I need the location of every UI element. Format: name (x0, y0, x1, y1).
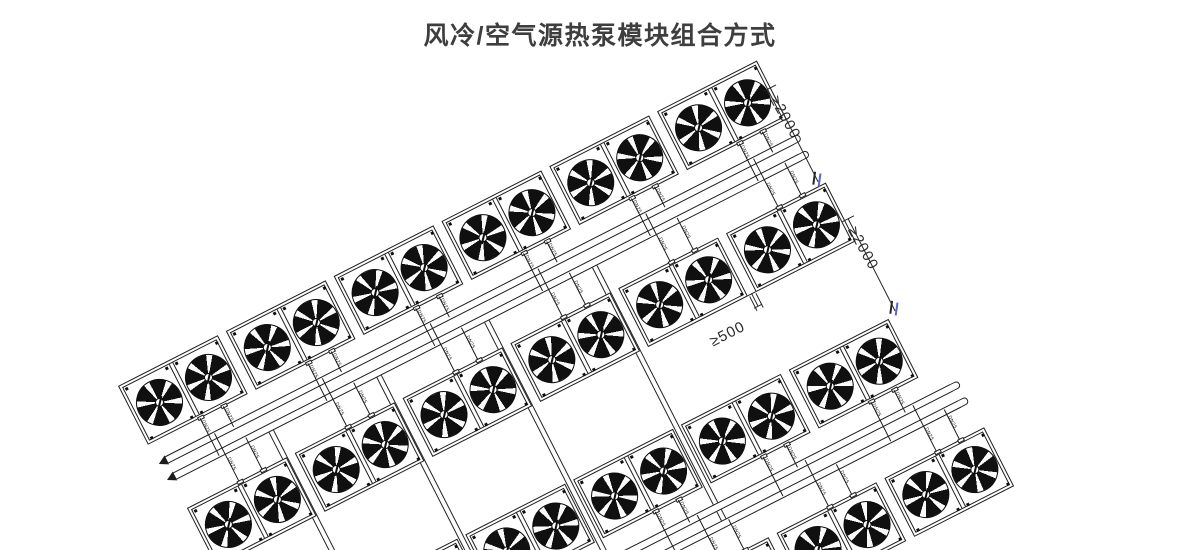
pipe-connector-label: DN25 (739, 145, 750, 160)
bolt-mark (309, 512, 313, 516)
bolt-mark (434, 448, 438, 452)
pipe-connector-label: DN25 (786, 446, 797, 461)
pipe-connector-label: DN25 (947, 415, 958, 430)
pipe-connector-label: DN25 (442, 347, 453, 362)
bolt-mark (808, 258, 812, 262)
heat-pump-module (726, 183, 856, 293)
bolt-mark (268, 532, 272, 536)
pipe-connector-label: DN25 (679, 501, 690, 516)
pipe-connector-label: DN25 (655, 188, 666, 203)
heat-pump-module (295, 402, 425, 512)
bolt-mark (798, 263, 802, 267)
bolt-mark (956, 508, 960, 512)
bolt-mark (700, 313, 704, 317)
pipe-connector-label: DN25 (547, 243, 558, 258)
dimension-label: ≥500 (707, 318, 748, 350)
bolt-mark (966, 503, 970, 507)
pipe-connector-label: DN25 (331, 353, 342, 368)
pipe-connector-label: DN25 (439, 298, 450, 313)
bolt-mark (240, 390, 244, 394)
dimension-label: ≥2000 (844, 224, 881, 273)
pipe-connector-label: DN25 (334, 402, 345, 417)
heat-pump-module (187, 457, 317, 550)
pipe-connector-label: DN25 (816, 482, 827, 497)
bolt-mark (898, 537, 902, 541)
heat-pump-module (777, 482, 907, 550)
bolt-mark (758, 283, 762, 287)
bolt-mark (347, 335, 351, 339)
pipe-connector-label: DN25 (765, 182, 776, 197)
bolt-mark (753, 454, 757, 458)
pipe-connector-label: DN25 (223, 408, 234, 423)
heat-pump-module (884, 427, 1014, 537)
bolt-mark (542, 393, 546, 397)
bolt-mark (513, 251, 517, 255)
heat-pump-module (510, 292, 640, 402)
pipe-connector-label: DN25 (657, 237, 668, 252)
pipe-connector-label: DN25 (416, 309, 427, 324)
pipe-connector-label: DN25 (924, 427, 935, 442)
bolt-mark (621, 196, 625, 200)
bolt-mark (740, 292, 744, 296)
bolt-mark (416, 457, 420, 461)
bolt-mark (713, 474, 717, 478)
bolt-mark (473, 271, 477, 275)
pipe-connector-label: DN25 (788, 170, 799, 185)
bolt-mark (582, 373, 586, 377)
bolt-mark (298, 360, 302, 364)
diagram-canvas: 风冷/空气源热泵模块组合方式 DN25DN25DN25DN25DN25DN25D… (0, 0, 1200, 550)
bolt-mark (484, 423, 488, 427)
bolt-mark (803, 429, 807, 433)
pipe-connector-label: DN25 (763, 458, 774, 473)
bolt-mark (258, 381, 262, 385)
pipe-connector-label: DN25 (894, 391, 905, 406)
bolt-mark (689, 161, 693, 165)
bolt-mark (645, 509, 649, 513)
bolt-mark (671, 170, 675, 174)
pipe-connector-label: DN25 (308, 364, 319, 379)
bolt-mark (474, 428, 478, 432)
heat-pump-module (465, 484, 595, 550)
pipe-connector-label: DN25 (731, 525, 742, 540)
bolt-mark (820, 420, 824, 424)
diagram-title: 风冷/空气源热泵模块组合方式 (0, 16, 1200, 52)
bolt-mark (695, 484, 699, 488)
pipe-connector-label: DN25 (655, 513, 666, 528)
bolt-mark (376, 477, 380, 481)
pipe-connector-label: DN25 (871, 403, 882, 418)
bolt-mark (729, 141, 733, 145)
pipe-connector-label: DN25 (357, 390, 368, 405)
bolt-mark (605, 529, 609, 533)
pipe-connector-label: DN25 (524, 255, 535, 270)
pipe-connector-label: DN25 (763, 133, 774, 148)
bolt-mark (581, 216, 585, 220)
bolt-mark (1006, 482, 1010, 486)
bolt-mark (259, 537, 263, 541)
bolt-mark (190, 415, 194, 419)
pipe-connector-label: DN25 (680, 225, 691, 240)
bolt-mark (455, 280, 459, 284)
bolt-mark (592, 368, 596, 372)
bolt-mark (365, 326, 369, 330)
bolt-mark (326, 503, 330, 507)
bolt-mark (405, 306, 409, 310)
bolt-mark (150, 436, 154, 440)
bolt-mark (587, 539, 591, 543)
heat-pump-module (403, 347, 533, 457)
pipe-connector-label: DN25 (249, 445, 260, 460)
bolt-mark (690, 318, 694, 322)
pipe-connector-label: DN25 (200, 419, 211, 434)
bolt-mark (650, 338, 654, 342)
dimension-oblique-tick (895, 302, 898, 315)
bolt-mark (632, 347, 636, 351)
pipe-connector-label: DN25 (708, 537, 719, 550)
pipe-connector-label: DN25 (573, 280, 584, 295)
pipe-connector-label: DN25 (550, 292, 561, 307)
bolt-mark (524, 402, 528, 406)
pipe-connector-label: DN25 (839, 470, 850, 485)
pipe-connector-label: DN25 (465, 335, 476, 350)
bolt-mark (861, 399, 865, 403)
bolt-mark (916, 528, 920, 532)
pipe-connector-label: DN25 (632, 200, 643, 215)
pipe-connector-label: DN25 (226, 457, 237, 472)
bolt-mark (367, 482, 371, 486)
bolt-mark (910, 374, 914, 378)
bolt-mark (563, 225, 567, 229)
